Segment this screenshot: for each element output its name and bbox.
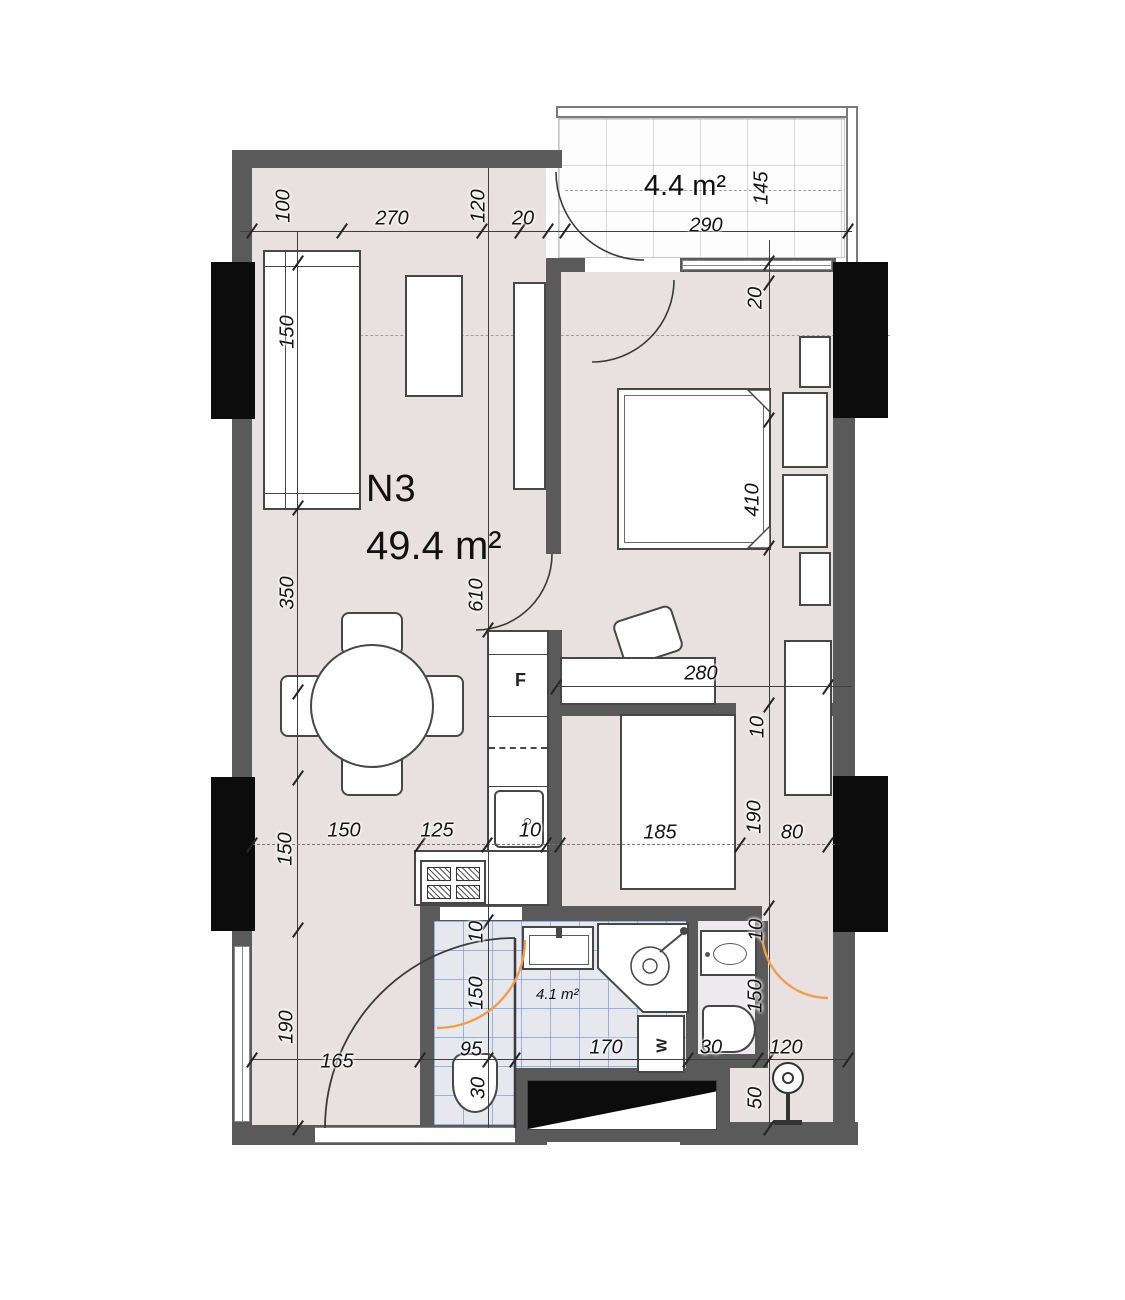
floor-plan: F W xyxy=(0,0,1125,1300)
balcony-area-label: 4.4 m² xyxy=(610,170,760,203)
plan-overlay xyxy=(0,0,1125,1300)
shower-head-icon xyxy=(680,927,688,935)
door-arc-bathroom xyxy=(437,940,525,1028)
door-arc-bedroom-balcony xyxy=(592,280,674,362)
unit-label: N3 xyxy=(366,468,417,511)
bathroom-area-label: 4.1 m² xyxy=(536,986,579,1003)
door-arc-entry xyxy=(325,938,515,1128)
unit-area-label: 49.4 m² xyxy=(366,524,502,569)
door-arc-wc-hall xyxy=(762,932,828,998)
bed-fold-mark xyxy=(748,390,770,412)
bed-fold-mark xyxy=(748,526,770,548)
